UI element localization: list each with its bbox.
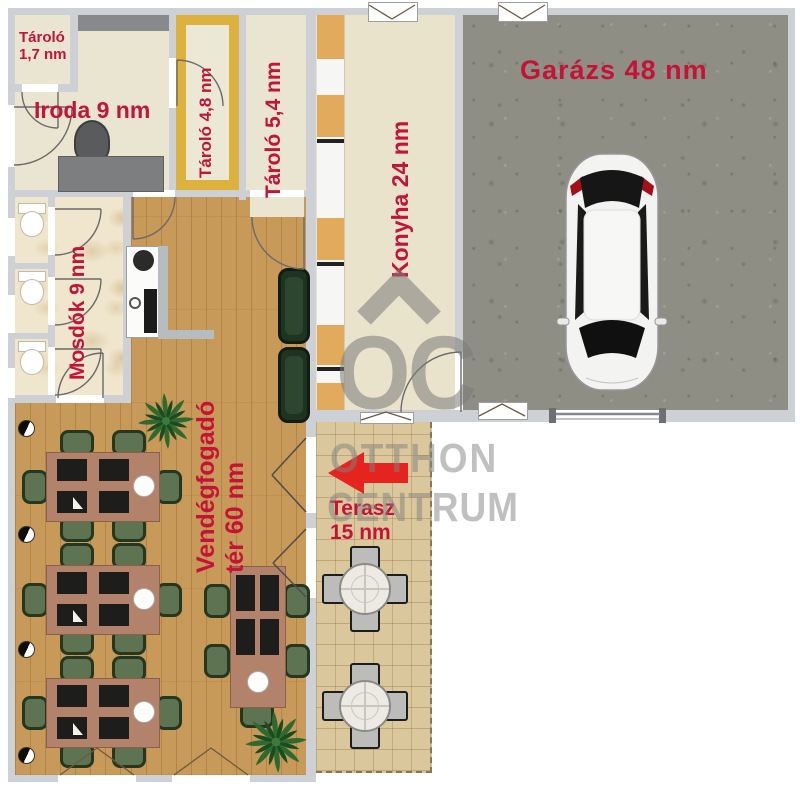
french-door-2-leaves: [273, 529, 306, 597]
window-v-main-1: [60, 748, 134, 775]
window-v-top-garage: [499, 5, 545, 19]
window-v-top-kitchen: [369, 5, 415, 19]
window-v-bottom-garage: [479, 404, 525, 416]
arrow-shaft: [362, 463, 408, 483]
entrance-arrow: [328, 452, 412, 494]
door-arc-hall-right: [252, 217, 304, 269]
label-iroda: Iroda 9 nm: [34, 98, 150, 124]
label-tarolo-5-4: Tároló 5,4 nm: [262, 28, 286, 198]
label-tarolo-4-8: Tároló 4,8 nm: [196, 38, 215, 178]
label-mosdok: Mosdók 9 nm: [66, 240, 90, 380]
arrow-head: [328, 452, 364, 494]
car: [557, 154, 667, 390]
window-v-main-2: [174, 748, 248, 775]
label-vendegfogado: Vendégfogadó tér 60 nm: [192, 368, 250, 573]
door-arc-kitchen-garage: [401, 352, 461, 412]
plant: [245, 711, 307, 773]
french-door-1-leaves: [272, 438, 306, 512]
garage-door-line: [556, 414, 660, 419]
plant: [138, 393, 194, 449]
floor-plan: Tároló 1,7 nm Iroda 9 nm Tároló 4,8 nm T…: [0, 0, 800, 789]
window-v-bottom-kitchen: [361, 412, 411, 420]
label-terasz: Terasz 15 nm: [330, 497, 395, 544]
label-garazs: Garázs 48 nm: [520, 55, 708, 85]
label-tarolo-1-7: Tároló 1,7 nm: [19, 30, 67, 64]
label-konyha: Konyha 24 nm: [388, 78, 414, 278]
door-arc-hall-left: [133, 197, 175, 239]
